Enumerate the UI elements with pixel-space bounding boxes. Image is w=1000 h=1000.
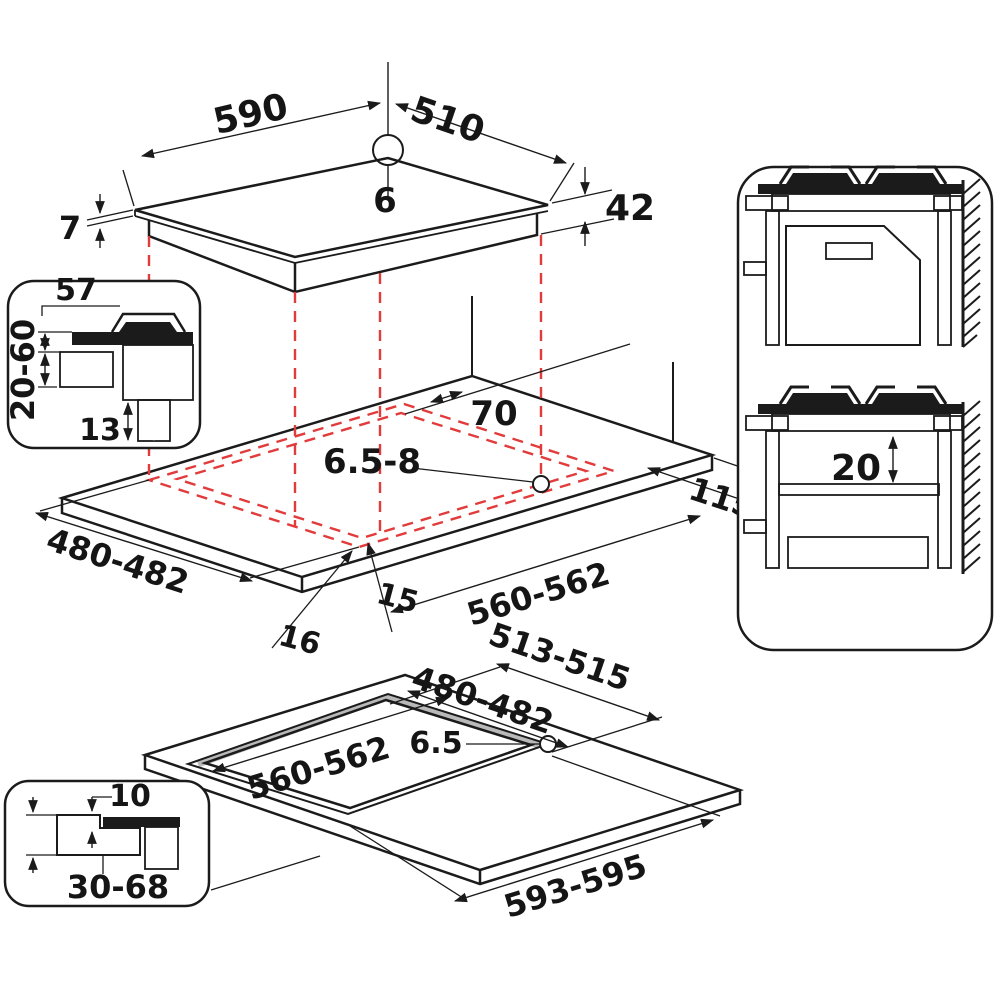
dim-cutout-rear: 70 — [470, 394, 517, 434]
worktop-thickness-edge — [145, 755, 740, 884]
cabinet-views-panel: 20 — [738, 167, 992, 650]
dim-worktop-thickness-range: 20-60 — [4, 319, 42, 421]
dim-flush-worktop-thickness: 30-68 — [67, 868, 169, 906]
hob-glass-section — [103, 817, 180, 827]
dim-hob-depth: 510 — [405, 89, 489, 152]
fixing-hole-marker — [533, 476, 549, 492]
installation-diagram-page: 590 510 6 7 42 — [0, 0, 1000, 1000]
hob-glass-section — [72, 332, 193, 345]
dim-hob-glass: 7 — [59, 209, 81, 247]
dim-side-gap: 15 — [373, 576, 422, 621]
panel-leader-line — [211, 856, 320, 890]
dim-hob-height: 42 — [605, 188, 655, 229]
dim-gas-inlet: 13 — [79, 413, 121, 448]
burner-cap-icon — [119, 322, 177, 332]
dim-hob-width: 590 — [210, 86, 292, 143]
dim-front-gap: 16 — [275, 618, 324, 663]
section-detail-panel: 57 20-60 13 — [4, 273, 200, 448]
dim-flush-hole: 6.5 — [409, 726, 462, 761]
dim-rebate-depth: 10 — [109, 779, 151, 814]
dim-shelf-gap: 20 — [831, 448, 881, 489]
dim-front-overhang: 57 — [55, 273, 97, 308]
installation-diagram: 590 510 6 7 42 — [0, 0, 1000, 1000]
flush-mount-view: 6.5 560-562 480-482 513-515 593-595 — [145, 615, 740, 926]
hob-glass-side — [758, 404, 962, 414]
dim-cutout-holes: 6.5-8 — [323, 442, 421, 482]
dim-hob-hole: 6 — [373, 181, 397, 221]
hob-glass-side — [758, 184, 962, 194]
hob-top-face — [135, 158, 548, 257]
